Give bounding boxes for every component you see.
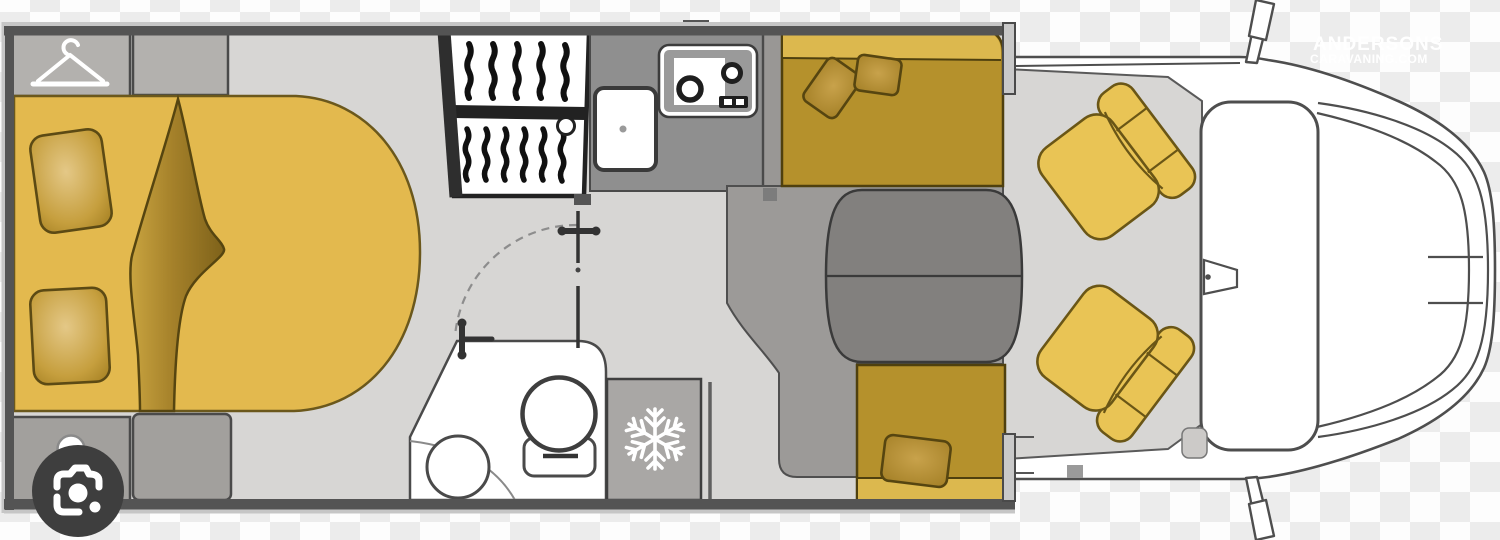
svg-text:CARAVANING.COM: CARAVANING.COM (1310, 52, 1428, 66)
